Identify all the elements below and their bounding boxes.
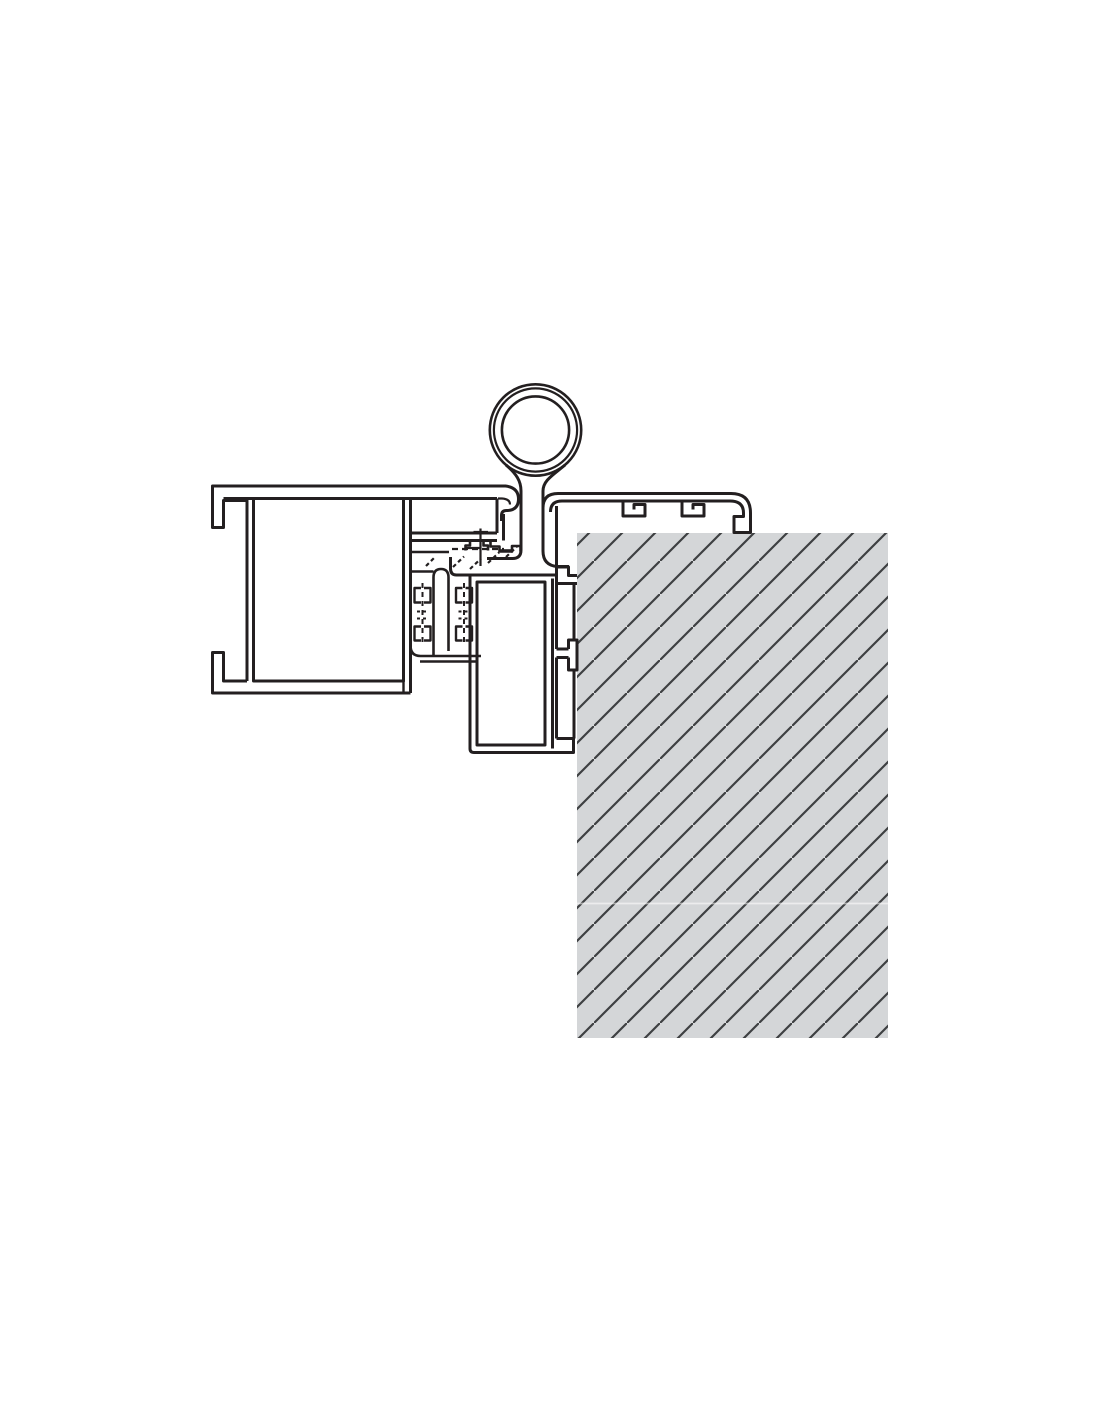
- hinge-knuckle: [487, 384, 581, 566]
- trim-outline: [543, 494, 751, 533]
- leaf-chamber: [477, 582, 545, 745]
- section-drawing: [0, 0, 1100, 1422]
- trim-foot-underlay: [734, 525, 751, 532]
- frame-bead: [498, 486, 519, 521]
- diagram-canvas: [0, 0, 1100, 1422]
- knuckle-mid-ring: [494, 388, 577, 471]
- trim-hook-1: [623, 501, 645, 516]
- frame-bead-inner: [498, 499, 510, 505]
- trim-hook-2: [682, 501, 704, 516]
- wall-hatch: [577, 533, 888, 1038]
- frame-upper-chamber: [411, 499, 504, 541]
- leaf-wall-stub: [557, 567, 578, 584]
- brush-seal-1: [415, 583, 431, 646]
- frame-main-chamber: [254, 499, 404, 682]
- leaf-t-anchor: [557, 640, 578, 670]
- door-leaf-profile: [451, 557, 578, 753]
- knuckle-pin-bore: [502, 396, 569, 463]
- gasket-seals: [411, 529, 521, 662]
- seal-center-divider: [434, 569, 449, 656]
- knuckle-outer-ring: [490, 384, 581, 475]
- wall-hatch-lines: [577, 533, 888, 1038]
